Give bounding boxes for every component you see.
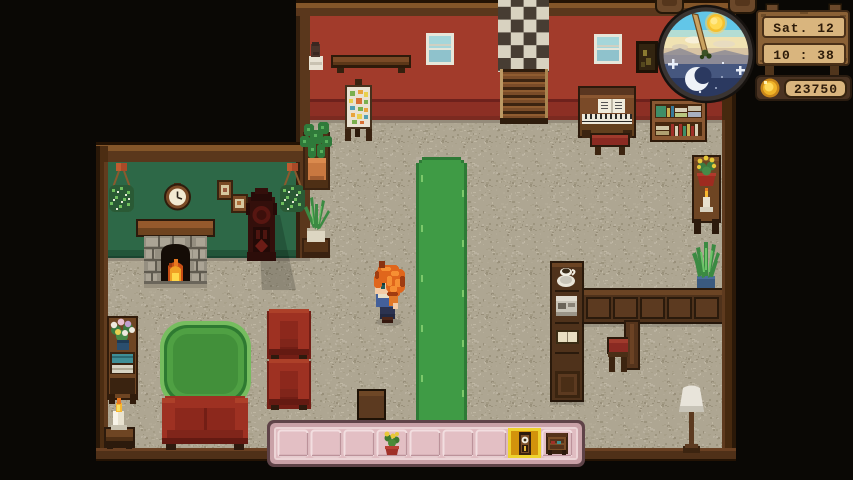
svg-text:10 : 38: 10 : 38 — [773, 48, 835, 63]
svg-text:23750: 23750 — [794, 82, 838, 97]
svg-text:Sat. 12: Sat. 12 — [773, 21, 835, 36]
